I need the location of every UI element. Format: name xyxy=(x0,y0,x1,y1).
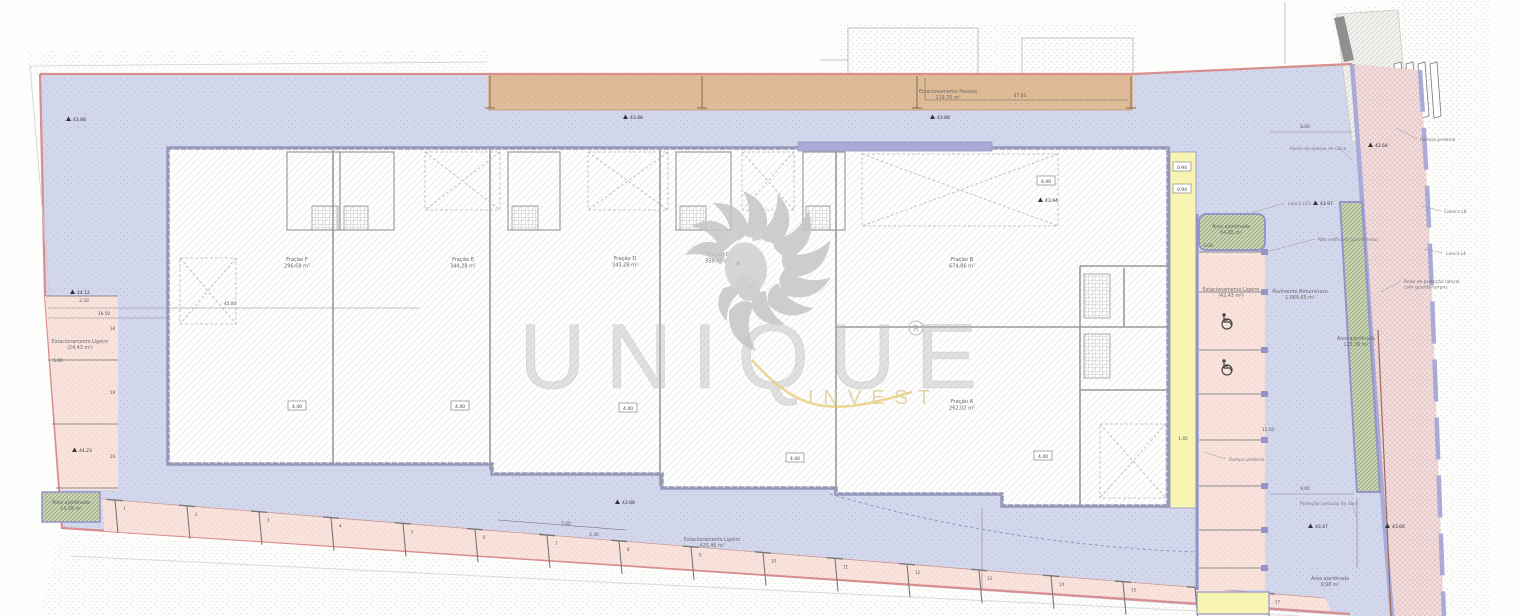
dimension-value: 5.00 xyxy=(561,521,571,527)
annotation-label: Lancil L43 xyxy=(1288,201,1311,207)
area-label: Área ajardinada xyxy=(52,499,90,506)
annotation-label: Caleira L6 xyxy=(1444,209,1467,215)
level-value: 43.88 xyxy=(622,500,635,506)
area-label: Estacionamento Passeio xyxy=(919,89,977,95)
unit-area: 674,86 m² xyxy=(949,264,975,270)
boxed-value: 4.40 xyxy=(1041,179,1051,185)
area-label: Área ajardinada xyxy=(1311,575,1349,582)
pavement-strip-top xyxy=(485,74,1136,110)
level-value: 43.88 xyxy=(73,117,86,123)
dimension-value: 2.30 xyxy=(589,532,599,538)
boxed-value: 4.40 xyxy=(455,404,465,410)
annotation-label: Rampa pedonal xyxy=(1420,137,1455,143)
parking-strip-left xyxy=(45,296,118,490)
parking-block-right xyxy=(1197,214,1265,590)
walkway-yellow-bottom xyxy=(1197,592,1269,614)
annotation-label: Não edificado (pavimento) xyxy=(1318,237,1378,243)
divider-end-block xyxy=(1261,565,1268,571)
level-value: 43.64 xyxy=(1375,143,1388,149)
divider-end-block xyxy=(1261,437,1268,443)
area-label: Estacionamento Ligeiro xyxy=(684,537,740,543)
area-label: 425,46 m² xyxy=(700,543,725,549)
dimension-value: 45.00 xyxy=(224,301,237,307)
parking-space-number: 15 xyxy=(1131,588,1137,593)
annotation-label: Ponto de acesso de Obra xyxy=(1290,146,1346,152)
boxed-value: 0.94 xyxy=(1177,187,1187,193)
parking-space-number: 14 xyxy=(1059,582,1065,587)
dimension-value: 2.50 xyxy=(79,298,89,304)
annotation-label: Rede de proteção lateral xyxy=(1404,279,1460,285)
outside-sidewalk-top-left xyxy=(26,52,488,74)
divider-end-block xyxy=(1261,289,1268,295)
level-value: 43.88 xyxy=(937,115,950,121)
area-label: Área ajardinada xyxy=(1212,223,1250,230)
registered-r: R xyxy=(913,325,919,335)
level-value: 43.88 xyxy=(630,115,643,121)
unit-area: 296,68 m² xyxy=(284,264,310,270)
boxed-value: 0.94 xyxy=(1177,165,1187,171)
area-label: 9,98 m² xyxy=(1321,582,1340,588)
level-value: 43.94 xyxy=(1045,198,1058,204)
level-value: 43.97 xyxy=(1320,201,1333,207)
area-label: 64,85 m² xyxy=(1220,230,1242,236)
level-value: 44.23 xyxy=(79,448,92,454)
walkway-yellow-right xyxy=(1170,152,1196,508)
boxed-value: 4.40 xyxy=(790,456,800,462)
divider-end-block xyxy=(1261,391,1268,397)
existing-building-outline xyxy=(1022,38,1133,74)
dimension-value: 8.00 xyxy=(1300,124,1310,130)
area-label: 1.664,65 m² xyxy=(1285,295,1315,301)
unit-area: 344,28 m² xyxy=(450,264,476,270)
parking-space-number: 13 xyxy=(987,576,993,581)
divider-end-block xyxy=(1261,527,1268,533)
level-value: 44.12 xyxy=(77,290,90,296)
annotation-label: Proteção pessoas de obra xyxy=(1300,501,1358,507)
area-label: Pavimento Betuminoso xyxy=(1272,289,1327,295)
boxed-value: 4.40 xyxy=(292,404,302,410)
dimension-value: 11.10 xyxy=(1262,427,1275,433)
annotation-label: Rampa pedonal xyxy=(1229,457,1264,463)
area-label: (42,43 m²) xyxy=(1218,293,1244,299)
watermark-sub-text: INVEST xyxy=(808,387,940,409)
area-label: Estacionamento Ligeiro xyxy=(52,339,108,345)
existing-building-outline xyxy=(848,28,978,74)
area-label: Estacionamento Ligeiro xyxy=(1203,287,1259,293)
area-label: Área ajardinada xyxy=(1337,335,1375,342)
dimension-value: 5.00 xyxy=(53,358,63,364)
divider-end-block xyxy=(1261,347,1268,353)
parking-space-number: 18 xyxy=(110,326,116,331)
annotation-label: Lancil L4 xyxy=(1446,251,1466,257)
area-label: (24,43 m²) xyxy=(67,345,93,351)
floor-plan-drawing: 1234567891011121314151617 181920 xyxy=(0,0,1518,616)
dimension-value: 8.00 xyxy=(1300,486,1310,492)
divider-end-block xyxy=(1261,483,1268,489)
boxed-value: 4.40 xyxy=(1038,454,1048,460)
dimension-value: 16.50 xyxy=(98,311,111,317)
dimension-value: 1.45 xyxy=(1178,436,1188,442)
dimension-value: 5.00 xyxy=(1203,243,1213,249)
parking-space-number: 17 xyxy=(1275,599,1281,604)
unit-label: Fração D xyxy=(614,256,637,262)
unit-label: Fração E xyxy=(452,257,474,263)
level-value: 43.47 xyxy=(1315,524,1328,530)
site-plan-canvas: 1234567891011121314151617 181920 xyxy=(0,0,1518,616)
area-label: 219,70 m² xyxy=(936,95,961,101)
unit-label: Fração F xyxy=(286,257,308,263)
area-label: 115,36 m² xyxy=(1344,342,1369,348)
facade-band xyxy=(798,142,992,151)
parking-space-number: 20 xyxy=(110,454,116,459)
dimension-value: 47.65 xyxy=(1014,93,1027,99)
area-label: 14,39 m² xyxy=(60,506,82,512)
parking-space-number: 12 xyxy=(915,570,921,575)
level-value: 43.66 xyxy=(1392,524,1405,530)
annotation-label: com guarda-corpos xyxy=(1404,285,1448,291)
parking-space-number: 11 xyxy=(843,564,849,569)
unit-label: Fração B xyxy=(951,257,974,263)
unit-area: 343,28 m² xyxy=(612,263,638,269)
parking-space-number: 19 xyxy=(110,390,116,395)
parking-space-number: 10 xyxy=(771,559,777,564)
